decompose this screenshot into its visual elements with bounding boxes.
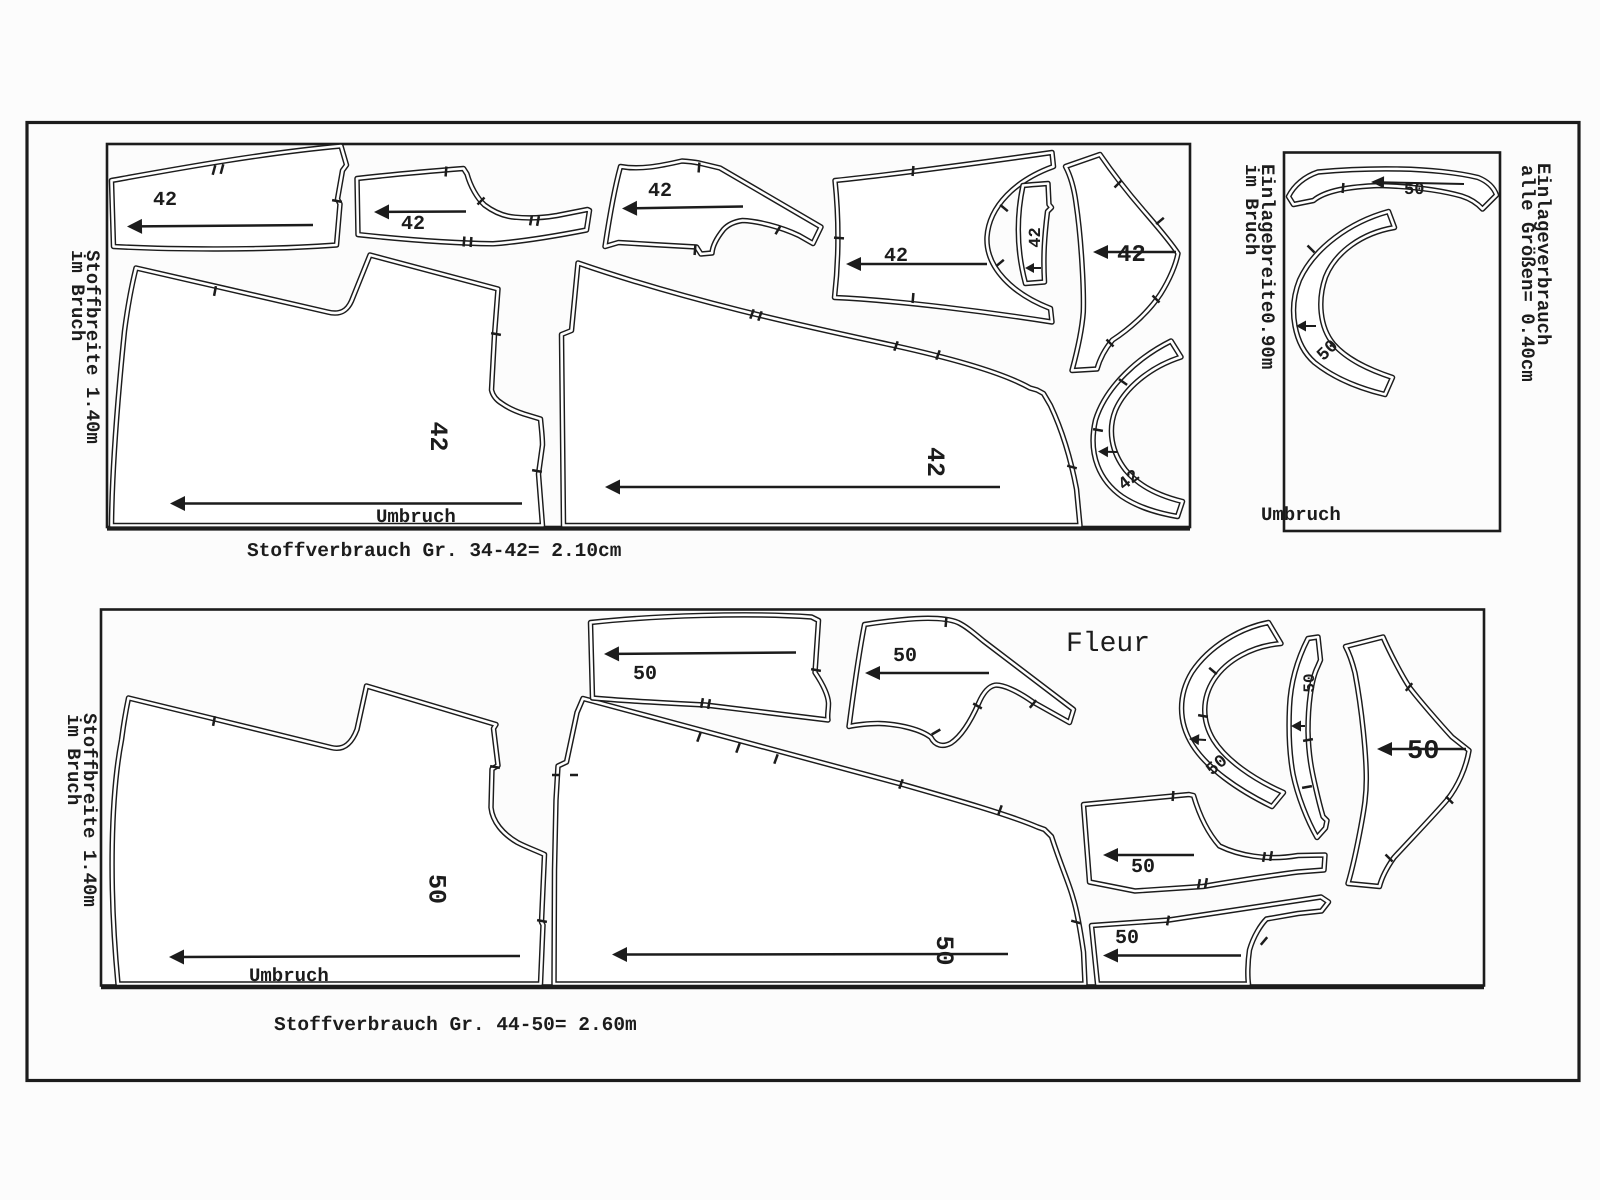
svg-text:42: 42 [884,245,908,268]
svg-text:42: 42 [401,213,425,236]
svg-text:alle Größen= 0.40cm: alle Größen= 0.40cm [1516,165,1538,382]
svg-text:Fleur: Fleur [1066,629,1150,660]
svg-text:42: 42 [920,447,949,477]
svg-text:Stoffverbrauch Gr. 44-50= 2.60: Stoffverbrauch Gr. 44-50= 2.60m [274,1014,637,1036]
svg-text:50: 50 [422,874,451,904]
svg-text:Stoffverbrauch Gr. 34-42= 2.10: Stoffverbrauch Gr. 34-42= 2.10cm [247,540,621,562]
svg-text:42: 42 [153,189,177,212]
svg-text:42: 42 [423,421,452,451]
svg-text:Umbruch: Umbruch [249,965,329,987]
svg-text:Umbruch: Umbruch [376,506,456,528]
svg-text:im Bruch: im Bruch [66,250,88,341]
svg-text:50: 50 [1115,927,1139,950]
svg-text:42: 42 [648,180,672,203]
svg-text:im Bruch: im Bruch [62,714,84,805]
svg-text:im Bruch: im Bruch [1240,164,1262,255]
svg-text:50: 50 [1301,673,1319,692]
svg-text:50: 50 [633,663,657,686]
svg-text:50: 50 [1404,181,1424,200]
svg-text:50: 50 [929,935,958,965]
svg-text:42: 42 [1027,227,1046,247]
svg-text:50: 50 [1407,737,1439,767]
svg-text:50: 50 [893,645,917,668]
svg-text:Umbruch: Umbruch [1261,504,1341,526]
svg-text:42: 42 [1117,242,1146,269]
svg-text:50: 50 [1131,856,1155,879]
